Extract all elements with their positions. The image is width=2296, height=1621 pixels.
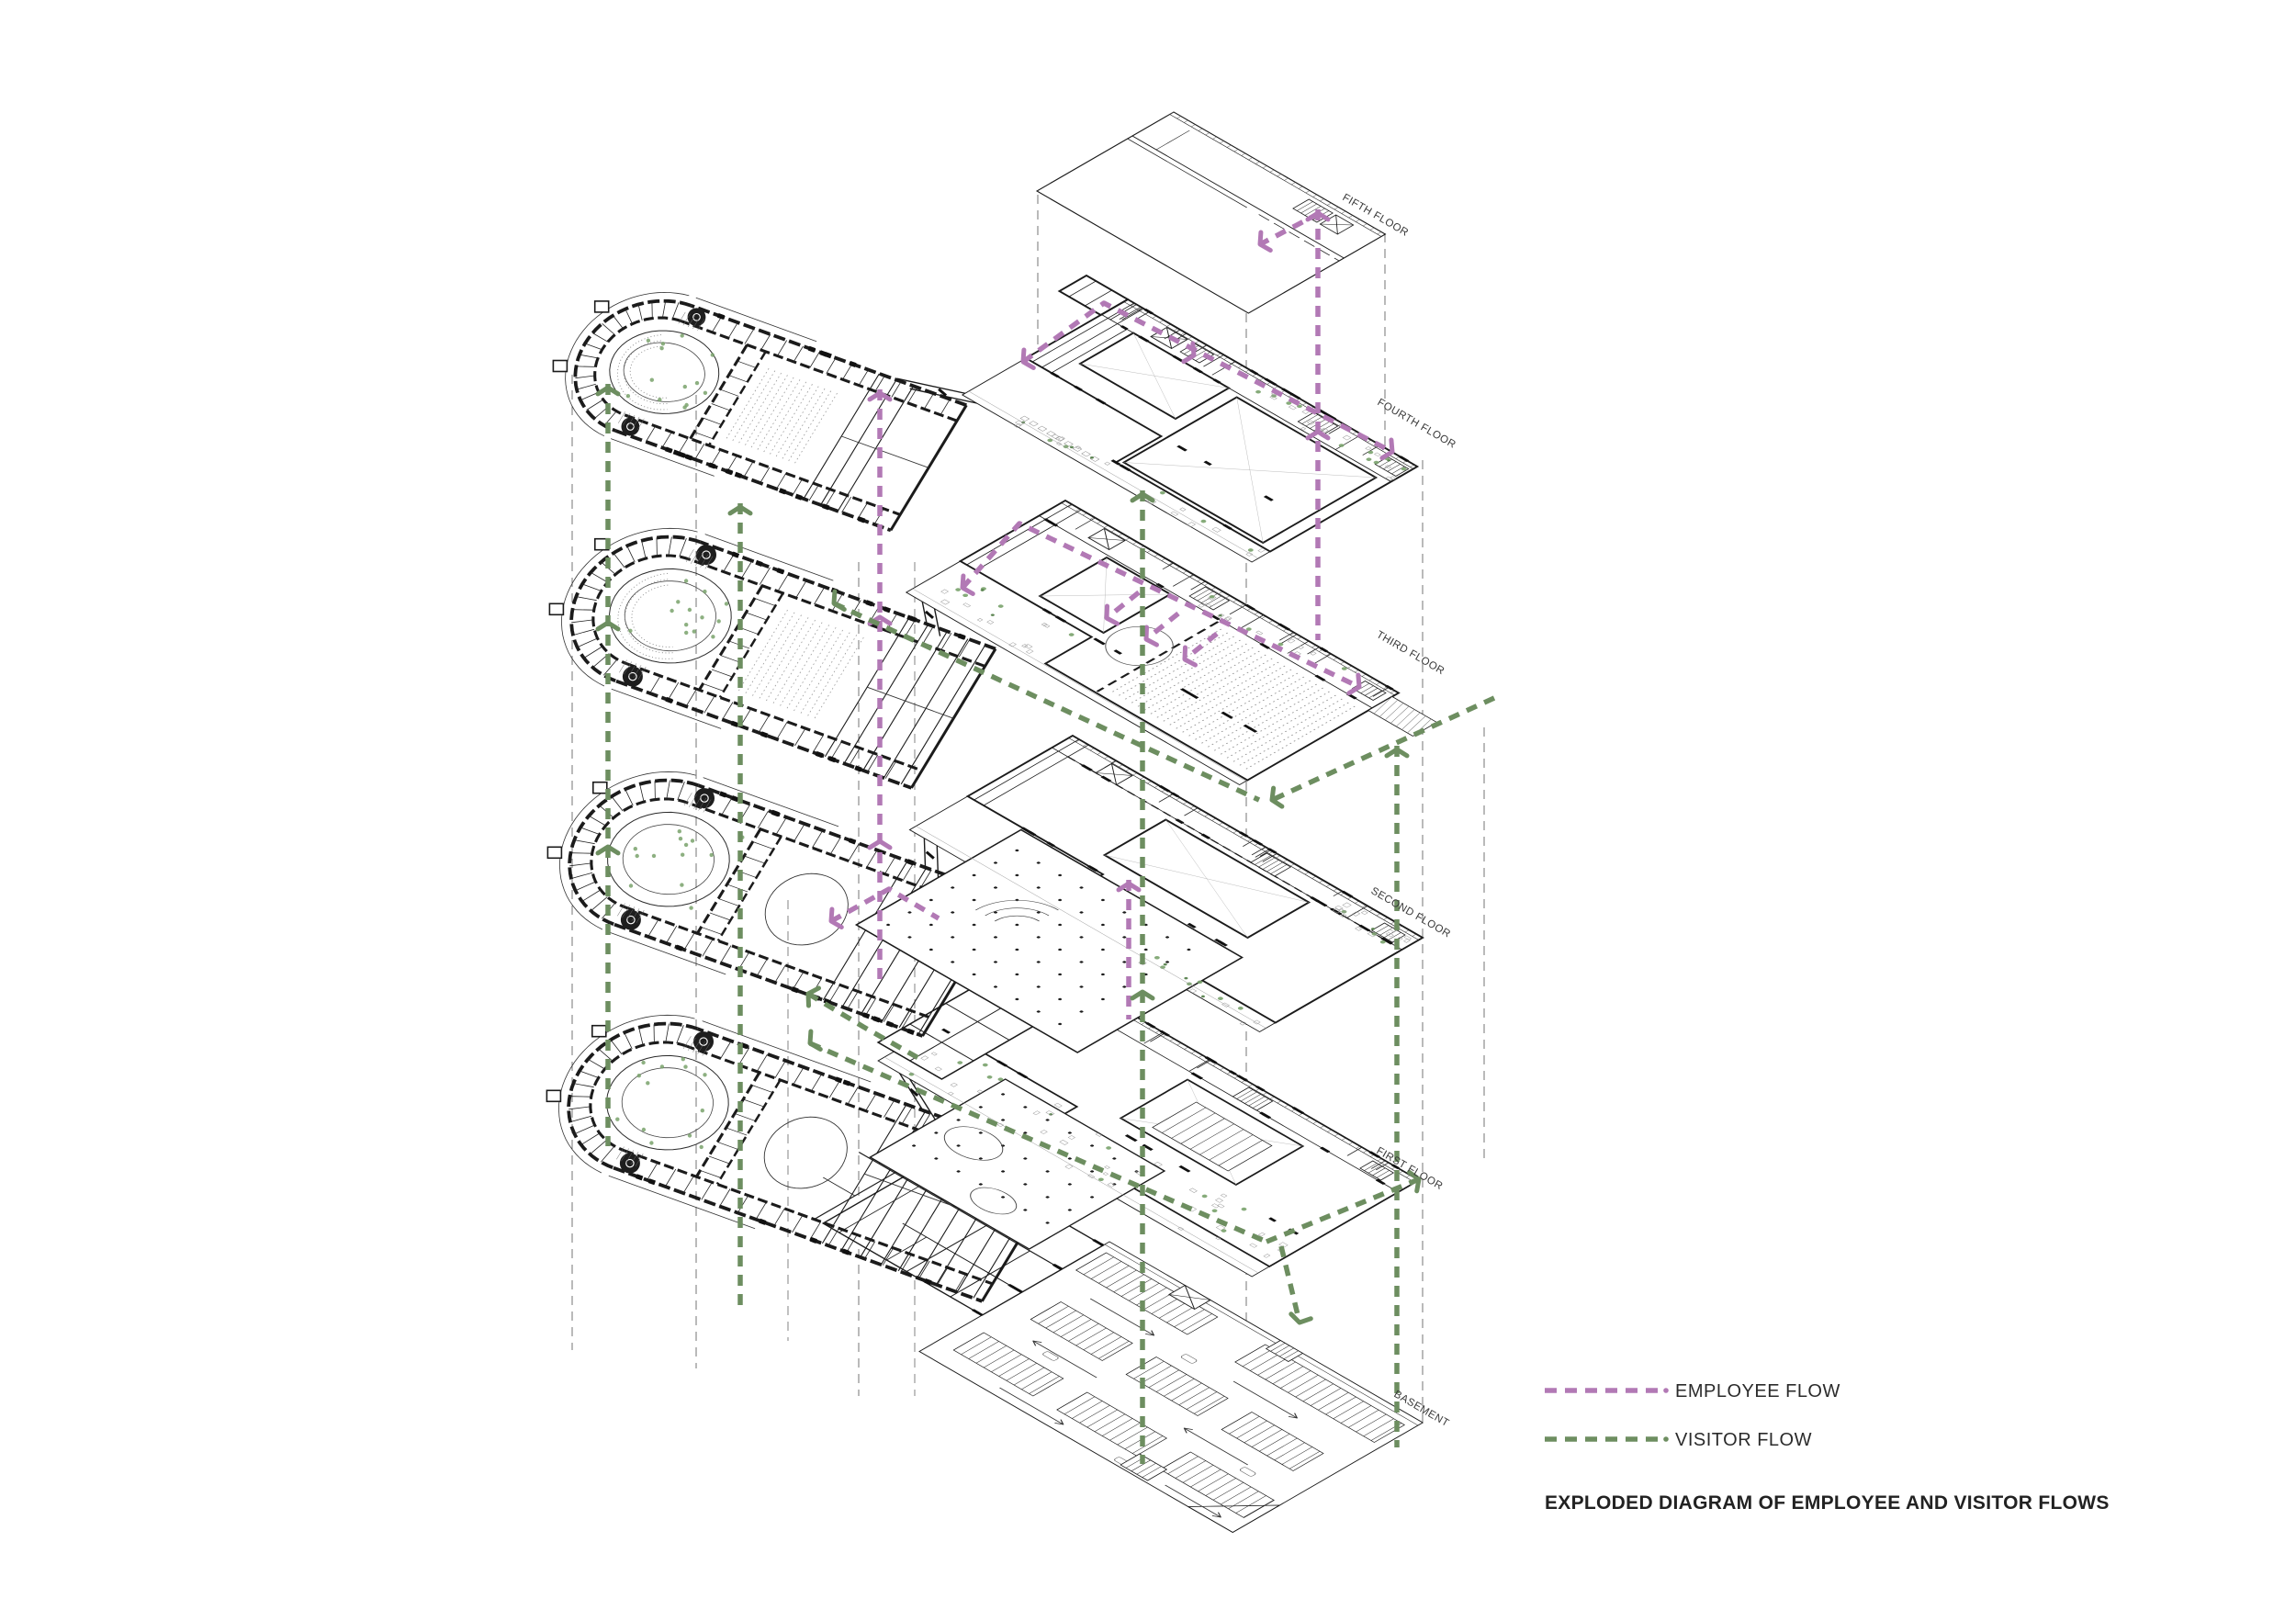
svg-text:VISITOR FLOW: VISITOR FLOW: [1675, 1430, 1812, 1450]
svg-text:EMPLOYEE FLOW: EMPLOYEE FLOW: [1675, 1381, 1840, 1401]
svg-text:EXPLODED DIAGRAM OF EMPLOYEE A: EXPLODED DIAGRAM OF EMPLOYEE AND VISITOR…: [1545, 1492, 2110, 1514]
